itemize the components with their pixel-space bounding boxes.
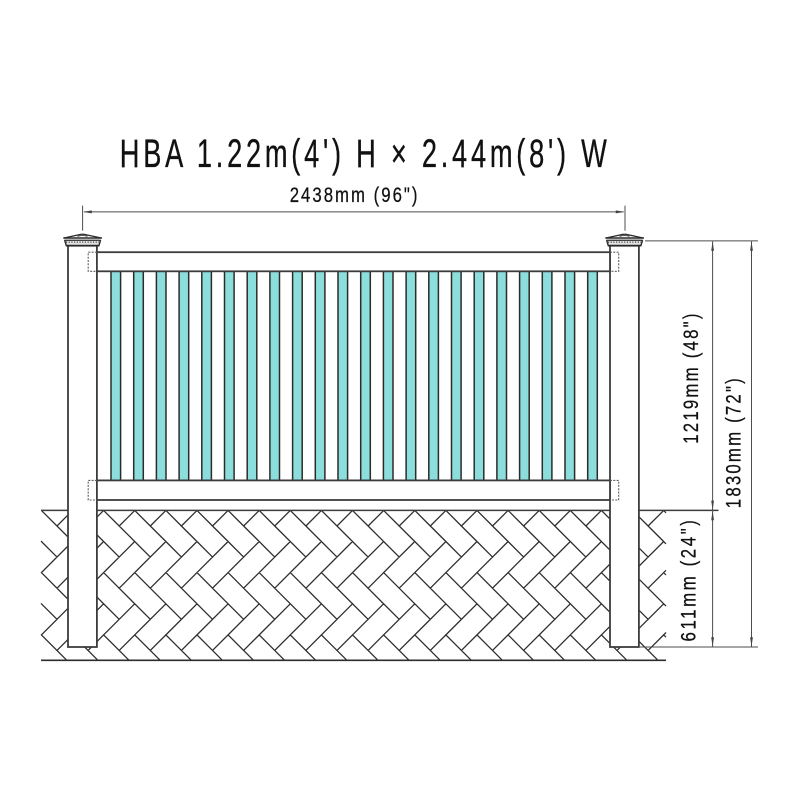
svg-text:1830mm (72"): 1830mm (72") — [723, 376, 746, 508]
svg-text:1219mm (48"): 1219mm (48") — [680, 311, 703, 443]
svg-text:611mm (24"): 611mm (24") — [678, 518, 701, 642]
svg-text:2438mm (96"): 2438mm (96") — [290, 184, 420, 207]
svg-text:HBA 1.22m(4') H × 2.44m(8') W: HBA 1.22m(4') H × 2.44m(8') W — [120, 132, 611, 176]
